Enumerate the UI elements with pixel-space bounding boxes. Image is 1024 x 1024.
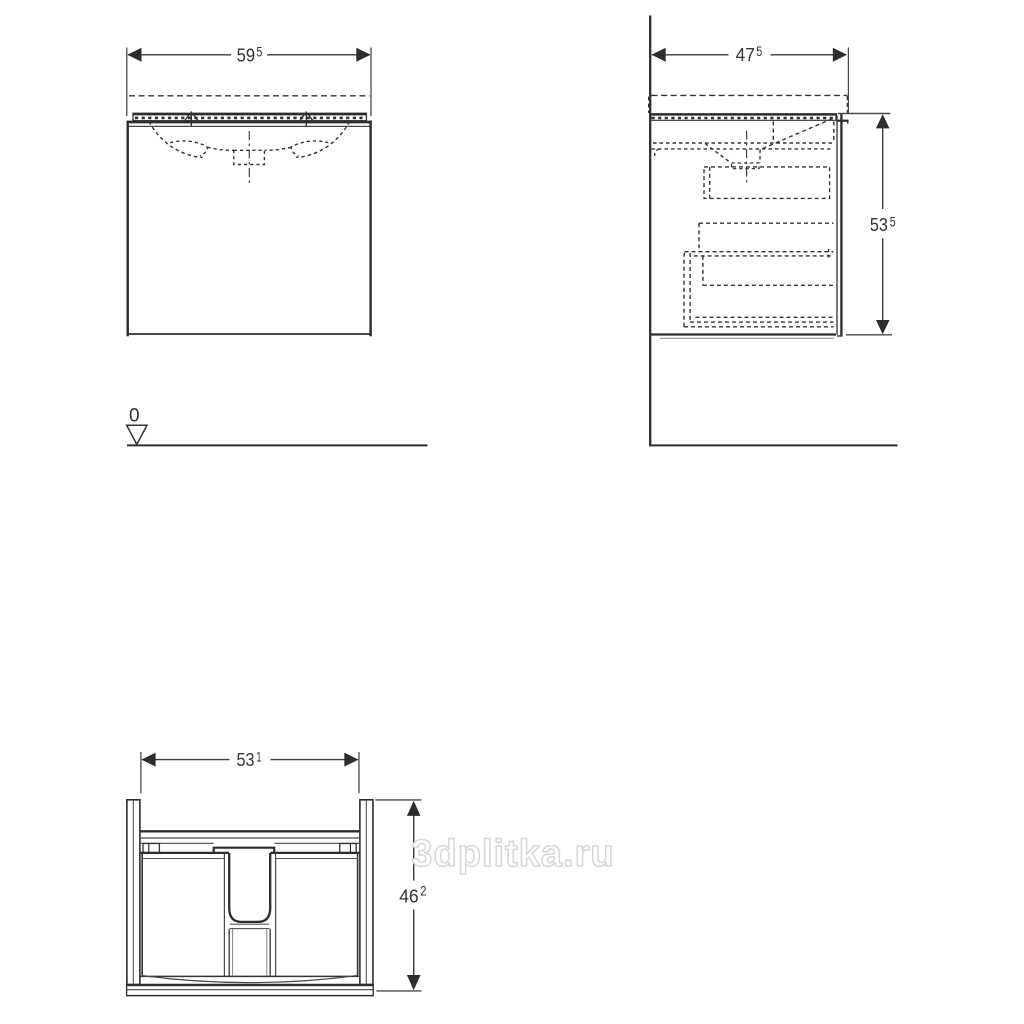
svg-text:2: 2	[420, 882, 426, 898]
svg-text:5: 5	[890, 213, 896, 229]
svg-text:59: 59	[237, 44, 256, 65]
svg-text:46: 46	[399, 885, 419, 906]
svg-text:1: 1	[256, 748, 262, 764]
svg-text:0: 0	[129, 406, 140, 427]
svg-text:47: 47	[736, 44, 755, 65]
svg-text:53: 53	[237, 749, 255, 770]
svg-text:3dplitka.ru: 3dplitka.ru	[411, 833, 614, 875]
svg-text:53: 53	[870, 214, 888, 235]
svg-text:5: 5	[256, 43, 262, 59]
svg-text:5: 5	[756, 43, 762, 59]
